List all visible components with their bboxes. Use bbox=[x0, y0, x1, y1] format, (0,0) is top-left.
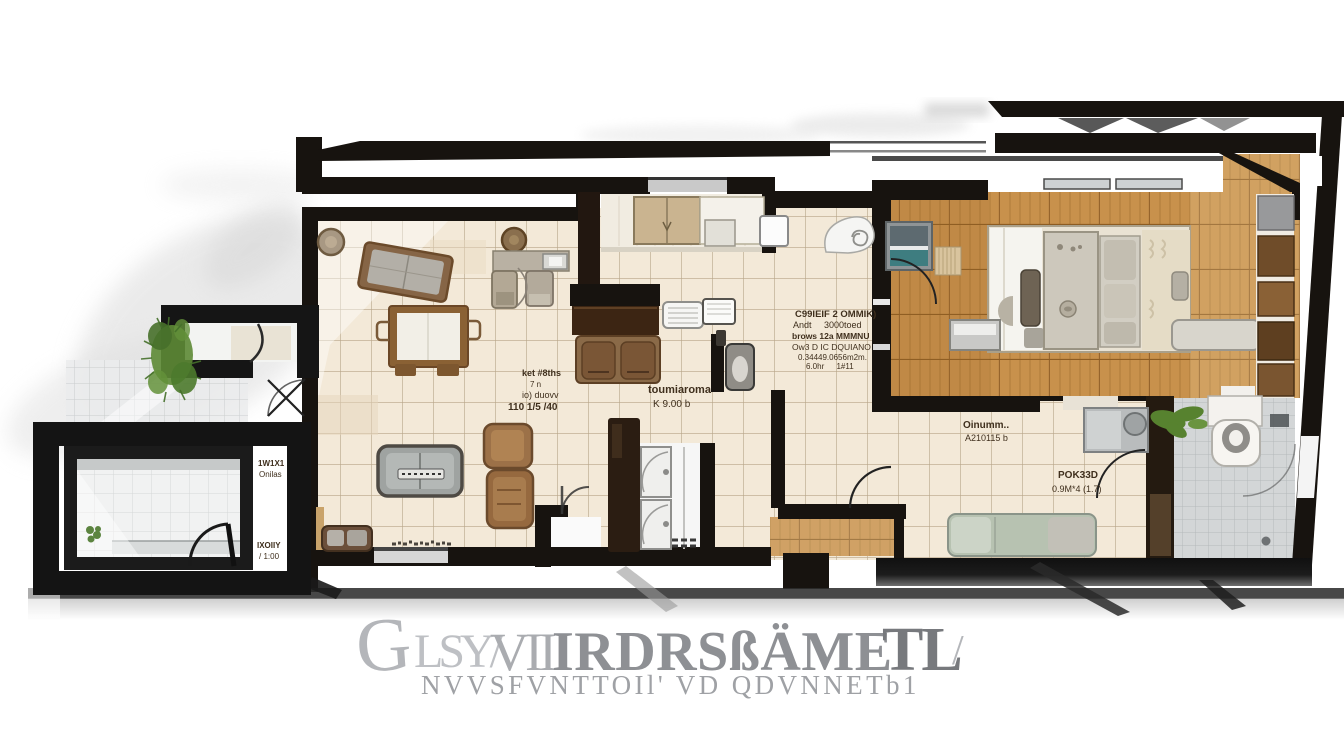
svg-text:7 n: 7 n bbox=[530, 380, 541, 389]
svg-text:ket #8ths: ket #8ths bbox=[522, 368, 561, 378]
svg-text:1W1X1: 1W1X1 bbox=[258, 459, 285, 468]
svg-text:/ 1:00: / 1:00 bbox=[259, 552, 280, 561]
svg-text:toumiaroma: toumiaroma bbox=[648, 384, 712, 396]
svg-text:G: G bbox=[353, 601, 414, 689]
svg-text:Andt 3000toed: Andt 3000toed bbox=[793, 320, 862, 330]
svg-text:brows 12a MMMNU: brows 12a MMMNU bbox=[792, 331, 869, 341]
svg-text:POK33D: POK33D bbox=[1058, 470, 1098, 481]
svg-text:C99IEIF 2 OMMIK): C99IEIF 2 OMMIK) bbox=[795, 309, 876, 320]
svg-text:0.9M*4 (1.7): 0.9M*4 (1.7) bbox=[1052, 484, 1102, 494]
svg-text:A210115 b: A210115 b bbox=[965, 433, 1008, 443]
svg-text:K 9.00 b: K 9.00 b bbox=[653, 399, 691, 410]
svg-text:/: / bbox=[952, 628, 964, 674]
svg-text:Ow3 D IC DQUIANO: Ow3 D IC DQUIANO bbox=[792, 342, 871, 352]
svg-text:Oinumm..: Oinumm.. bbox=[963, 420, 1009, 431]
svg-text:IXOIIY: IXOIIY bbox=[257, 541, 281, 550]
svg-text:NVVSFVNTTOIl' VD QDVNNETb1: NVVSFVNTTOIl' VD QDVNNETb1 bbox=[421, 670, 920, 700]
svg-text:110 1/5 /40: 110 1/5 /40 bbox=[508, 402, 558, 413]
svg-text:Onilas: Onilas bbox=[259, 470, 282, 479]
svg-text:io) duovv: io) duovv bbox=[522, 390, 559, 400]
svg-text:0.34449.0656m2m.: 0.34449.0656m2m. bbox=[798, 353, 867, 362]
